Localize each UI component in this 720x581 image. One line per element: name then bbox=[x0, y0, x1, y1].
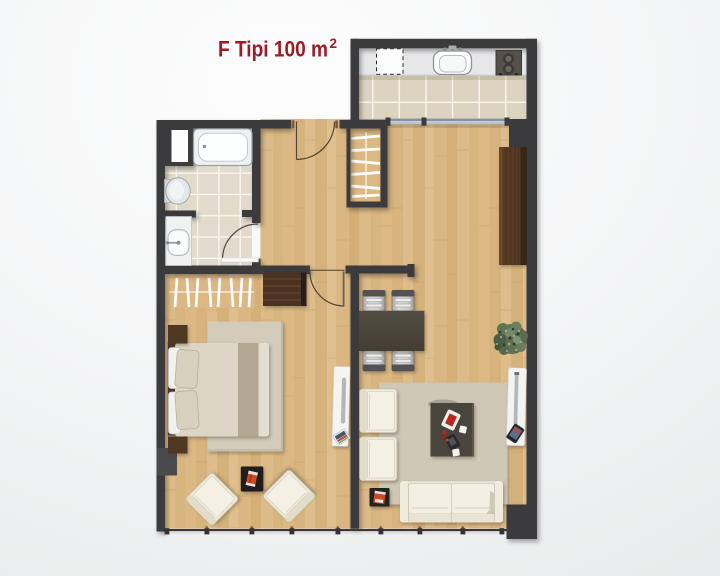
svg-text:F Tipi 100 m: F Tipi 100 m bbox=[218, 37, 328, 62]
svg-text:2: 2 bbox=[330, 36, 338, 51]
